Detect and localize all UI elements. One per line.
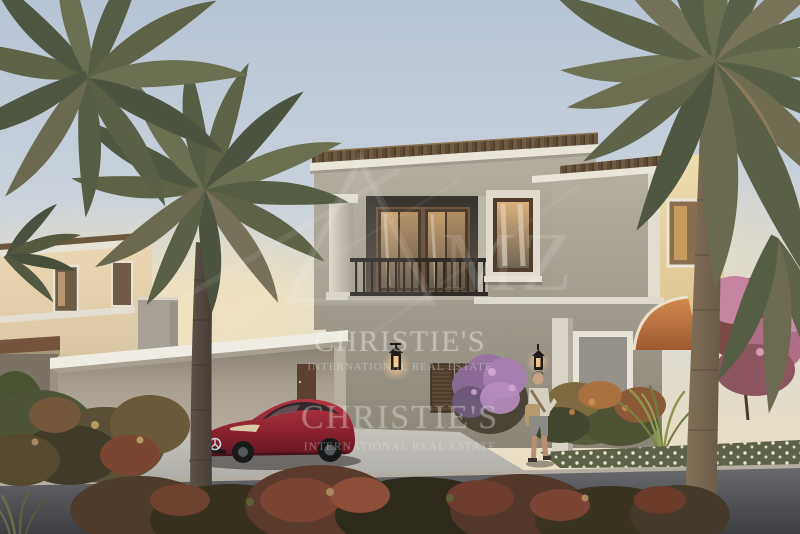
villa-scene-art: [0, 0, 800, 534]
neighbor-window: [54, 266, 78, 312]
upper-window: [484, 190, 542, 285]
pedestrian-head: [533, 374, 544, 385]
listing-photo-villa-exterior: MZ CHRISTIE'S INTERNATIONAL REAL ESTATE …: [0, 0, 800, 534]
neighbor-window: [112, 262, 132, 306]
balcony-railing: [348, 258, 490, 301]
balcony: [324, 194, 490, 301]
